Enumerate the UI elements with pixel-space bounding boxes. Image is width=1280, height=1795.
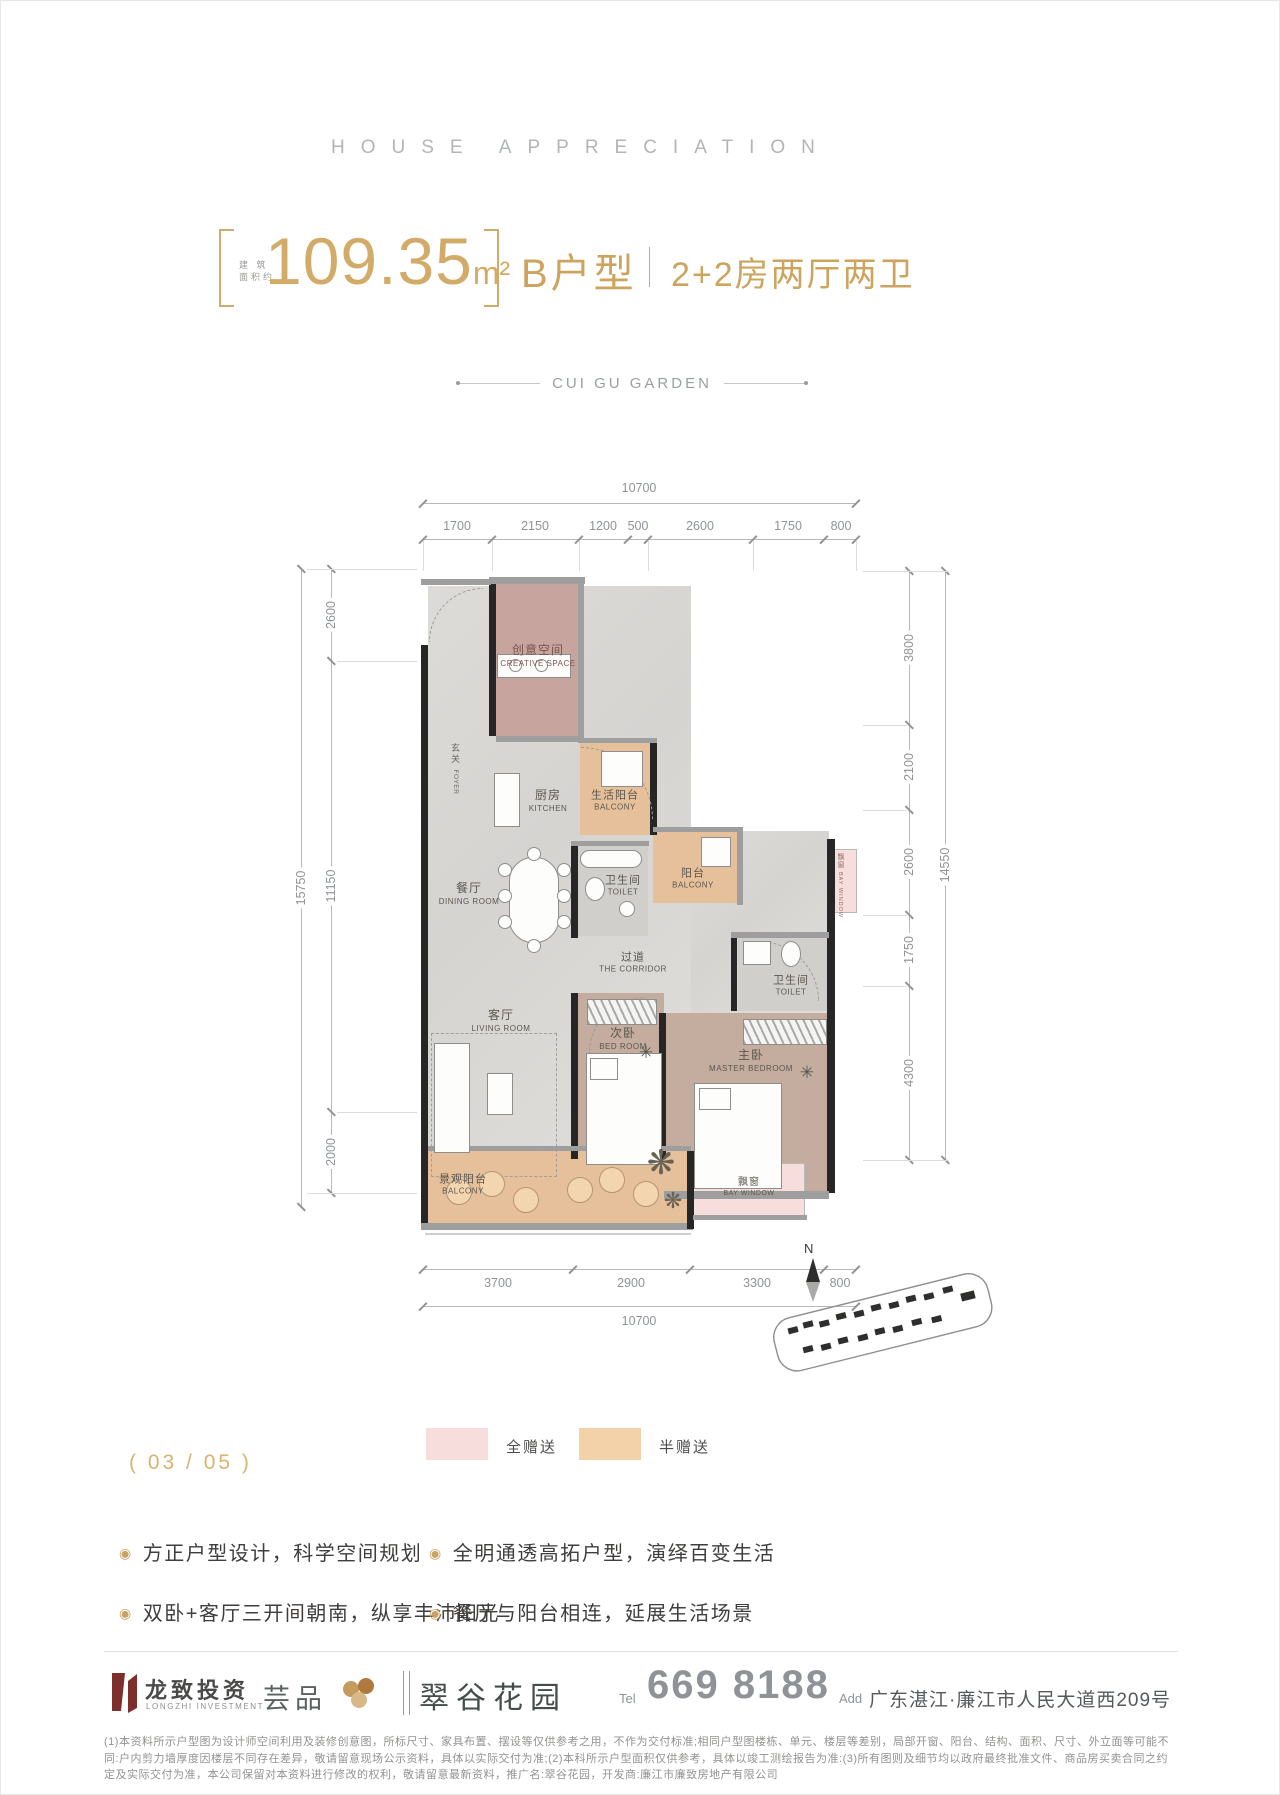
room-label-kitchen: 厨房 KITCHEN — [529, 788, 568, 814]
wall — [827, 1013, 835, 1193]
room-label-foyer: 玄关 FOYER — [449, 743, 462, 794]
plant-icon: ❋ — [664, 1188, 682, 1214]
window-wall — [421, 1223, 693, 1230]
garden-name-en: CUI GU GARDEN — [552, 375, 712, 392]
pillow — [699, 1088, 731, 1110]
site-plan-map — [759, 1243, 1009, 1393]
wall — [571, 841, 649, 846]
room-label-creative: 创意空间 CREATIVE SPACE — [500, 643, 575, 669]
dining-table — [509, 857, 559, 943]
dimension-label: 1750 — [902, 933, 916, 967]
dimension-label: 2150 — [518, 519, 552, 533]
bullet-icon: ◉ — [119, 1545, 133, 1561]
window-wall — [693, 1215, 807, 1220]
dimension-label: 500 — [625, 519, 652, 533]
footer-brand-yunpin: 芸品 — [263, 1677, 327, 1716]
wall — [731, 938, 737, 1011]
sofa — [434, 1043, 470, 1153]
washing-machine — [701, 837, 731, 867]
room-label-bay-window-right: 飘窗 BAY WINDOW — [835, 853, 845, 918]
longzhi-logo-icon — [105, 1669, 139, 1715]
dimension-label: 1750 — [771, 519, 805, 533]
footer-logo-name-en: LONGZHI INVESTMENT — [146, 1702, 264, 1711]
unit-type-description: 2+2房两厅两卫 — [671, 247, 915, 296]
dimension-label: 14550 — [938, 845, 952, 886]
pillow — [590, 1058, 618, 1080]
subtitle-line-right — [724, 383, 808, 384]
wall — [737, 827, 743, 905]
dining-chair — [498, 889, 512, 903]
unit-type-title: B户型 — [521, 241, 637, 299]
footer-brand-cuigu-garden: 翠谷花园 — [419, 1673, 567, 1717]
bullet-icon: ◉ — [429, 1605, 443, 1621]
wall — [421, 579, 491, 585]
dimension-label: 2900 — [614, 1276, 648, 1290]
balcony-chair — [633, 1181, 659, 1207]
dimension-label: 2600 — [902, 845, 916, 879]
dimension-label: 2100 — [902, 750, 916, 784]
wall — [731, 932, 829, 938]
bracket-left-decoration — [219, 229, 234, 307]
disclaimer-text: (1)本资料所示户型图为设计师空间利用及装修创意图，所标尺寸、家具布置、摆设等仅… — [104, 1734, 1179, 1784]
dining-chair — [498, 863, 512, 877]
toilet-fixture — [781, 941, 801, 967]
area-number: 109.35 — [265, 224, 473, 298]
tel-number: 669 8188 — [647, 1663, 830, 1708]
title-divider — [649, 247, 650, 287]
dimension-line — [423, 539, 856, 540]
wall — [653, 827, 743, 832]
dimension-label: 3800 — [902, 631, 916, 665]
feature-item: ◉全明通透高拓户型，演绎百变生活 — [429, 1537, 775, 1566]
page-title-en: HOUSE APPRECIATION — [331, 137, 831, 159]
dimension-label: 10700 — [619, 481, 660, 495]
dimension-label: 2000 — [324, 1135, 338, 1169]
address-label: Add — [839, 1691, 862, 1706]
dimension-label: 4300 — [902, 1056, 916, 1090]
room-label-bedroom-2: 次卧 BED ROOM — [599, 1026, 647, 1052]
wall — [489, 577, 585, 584]
dimension-label: 1200 — [586, 519, 620, 533]
wall — [489, 584, 496, 736]
poster-page: HOUSE APPRECIATION 建 筑 面积约 109.35m² B户型 … — [0, 0, 1280, 1795]
footer-logo-name: 龙致投资 — [145, 1673, 249, 1705]
page-indicator: ( 03 / 05 ) — [129, 1451, 252, 1475]
dimension-label: 3700 — [481, 1276, 515, 1290]
bullet-icon: ◉ — [429, 1545, 443, 1561]
dining-chair — [557, 889, 571, 903]
feature-item: ◉餐厅与阳台相连，延展生活场景 — [429, 1597, 754, 1626]
address-value: 广东湛江·廉江市人民大道西209号 — [869, 1685, 1171, 1712]
coffee-table — [487, 1073, 513, 1115]
room-label-bay-window: 飘窗 BAY WINDOW — [723, 1176, 774, 1198]
bullet-icon: ◉ — [119, 1605, 133, 1621]
balcony-chair — [567, 1177, 593, 1203]
plant-icon: ❋ — [647, 1143, 676, 1183]
room-label-dining: 餐厅 DINING ROOM — [439, 881, 500, 907]
sink-fixture — [743, 941, 771, 965]
legend-label-full-gift: 全赠送 — [506, 1436, 557, 1457]
footer-separator — [403, 1671, 410, 1715]
room-label-corridor: 过道 THE CORRIDOR — [599, 951, 667, 976]
fan-icon: ✳ — [800, 1063, 814, 1083]
room-label-toilet-1: 卫生间 TOILET — [605, 874, 641, 899]
dimension-label: 15750 — [294, 868, 308, 909]
laundry-sink — [601, 751, 643, 787]
dining-chair — [527, 847, 541, 861]
footer-divider — [104, 1651, 1178, 1652]
wall — [571, 846, 578, 938]
toilet-fixture — [585, 877, 605, 901]
wall — [421, 645, 428, 1226]
subtitle-line-left — [456, 383, 540, 384]
dining-chair — [557, 915, 571, 929]
feature-item: ◉方正户型设计，科学空间规划 — [119, 1537, 422, 1566]
wardrobe — [743, 1019, 827, 1045]
legend-swatch-full-gift — [426, 1428, 488, 1460]
wall — [827, 839, 835, 1013]
room-label-living: 客厅 LIVING ROOM — [472, 1008, 531, 1034]
dining-chair — [498, 915, 512, 929]
garden-subtitle: CUI GU GARDEN — [456, 375, 808, 392]
wardrobe — [587, 999, 657, 1025]
sink-fixture — [619, 901, 635, 917]
wall — [650, 743, 657, 835]
wall — [578, 584, 584, 743]
wall — [496, 736, 580, 742]
dining-chair — [557, 863, 571, 877]
yunpin-logo-icon — [339, 1677, 381, 1711]
bracket-right-decoration — [484, 229, 499, 307]
area-value: 109.35m² — [265, 223, 510, 299]
legend-label-half-gift: 半赠送 — [659, 1436, 710, 1457]
dimension-label: 1700 — [440, 519, 474, 533]
balcony-chair — [599, 1167, 625, 1193]
dining-chair — [527, 939, 541, 953]
legend-swatch-half-gift — [579, 1428, 641, 1460]
balcony-chair — [513, 1187, 539, 1213]
fridge — [494, 773, 520, 827]
dimension-label: 2600 — [683, 519, 717, 533]
tel-label: Tel — [619, 1691, 636, 1706]
room-label-view-balcony: 景观阳台 BALCONY — [439, 1173, 487, 1198]
dimension-label: 11150 — [324, 867, 338, 906]
wall — [580, 738, 657, 743]
room-label-life-balcony: 生活阳台 BALCONY — [591, 789, 639, 814]
dimension-label: 800 — [828, 519, 855, 533]
wall — [571, 993, 578, 1159]
dimension-line — [423, 503, 856, 504]
room-label-toilet-2: 卫生间 TOILET — [773, 974, 809, 999]
dimension-label: 10700 — [619, 1314, 660, 1328]
balcony-railing — [425, 1233, 691, 1235]
dimension-label: 2600 — [324, 598, 338, 632]
bathtub — [580, 850, 642, 868]
room-label-master: 主卧 MASTER BEDROOM — [709, 1048, 793, 1074]
room-label-balcony-mid: 阳台 BALCONY — [672, 867, 714, 892]
